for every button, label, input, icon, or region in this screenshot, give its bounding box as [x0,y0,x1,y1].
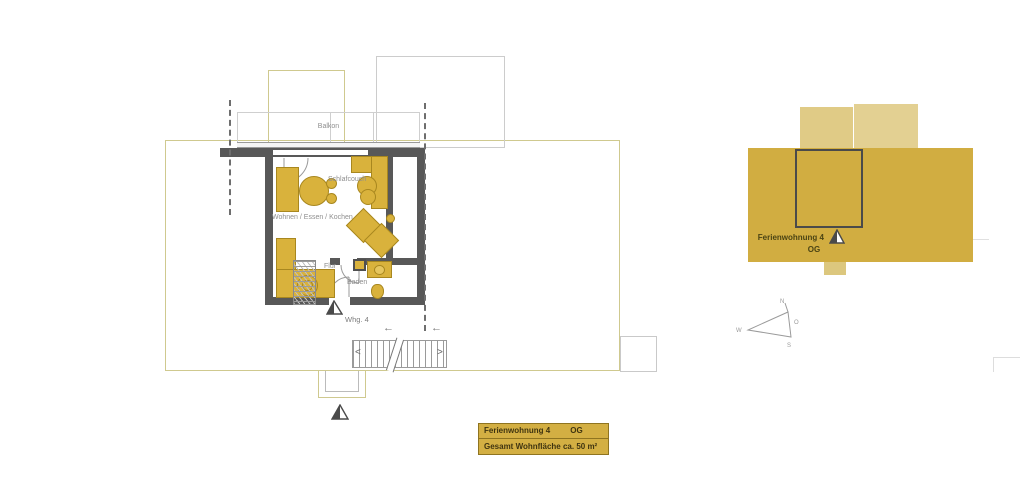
stool-dot [386,214,395,223]
keyplan-unit-name: Ferienwohnung 4 [750,234,824,242]
interior-stair [293,260,316,305]
dashed-line-right [424,103,426,331]
room-label-schlafcouch: Schlafcouch [328,176,366,183]
stair-direction-chevron: > [437,348,443,358]
toilet [371,284,384,299]
unit-entrance-marker-triangle [326,300,343,315]
wall-bottom-right-segment [350,297,425,305]
legend-unit-name: Ferienwohnung 4 [484,427,550,435]
wall-left [265,148,273,305]
room-label-flur: Flur [324,263,336,270]
compass-letter-west: W [736,328,742,334]
bath-sink-counter [367,261,392,278]
legend-row-area: Gesamt Wohnfläche ca. 50 m² [479,439,608,455]
room-label-bad: Baden [347,279,367,286]
keyplan-light-block-left [800,107,853,152]
washer [353,259,366,271]
keyplan-light-block-right [854,104,918,148]
edge-fragment [993,357,1020,372]
legend-floor: OG [570,427,582,435]
keyplan-marker-triangle [829,229,845,244]
balcony-label: Balkon [237,123,420,130]
compass-letter-east: O [794,320,799,326]
keyplan-side-line [973,239,989,240]
sofa [276,167,299,212]
legend-row-unit: Ferienwohnung 4 OG [479,424,608,439]
floorplan-sheet: Balkon Schlafcouch Wohnen [0,0,1020,492]
entry-porch-inner [325,371,359,392]
chair [326,193,337,204]
dashed-line-left [229,100,231,215]
stair-break-line [386,338,404,373]
legend-area-text: Gesamt Wohnfläche ca. 50 m² [484,443,597,451]
exterior-stair: < > [352,340,447,368]
porch-marker-triangle [331,404,349,420]
dining-table-round [299,176,329,206]
keyplan-unit-outline [795,149,863,228]
outline-notch [620,336,657,372]
room-label-wohnen: Wohnen / Essen / Kochen [272,214,353,221]
keyplan-floor: OG [804,246,824,254]
stair-arrow-right: ← [431,323,442,334]
stair-arrow-left: ← [383,323,394,334]
stair-direction-chevron: < [355,348,361,358]
pouf-small [360,189,376,205]
unit-marker-label: Whg. 4 [345,316,369,324]
compass-letter-south: S [787,343,791,349]
keyplan-bottom-tab [824,262,846,275]
legend-box: Ferienwohnung 4 OG Gesamt Wohnfläche ca.… [478,423,609,455]
compass-north-arrow: N O S W [735,295,807,349]
compass-letter-north: N [780,299,784,305]
bath-sink-bowl [374,265,385,275]
